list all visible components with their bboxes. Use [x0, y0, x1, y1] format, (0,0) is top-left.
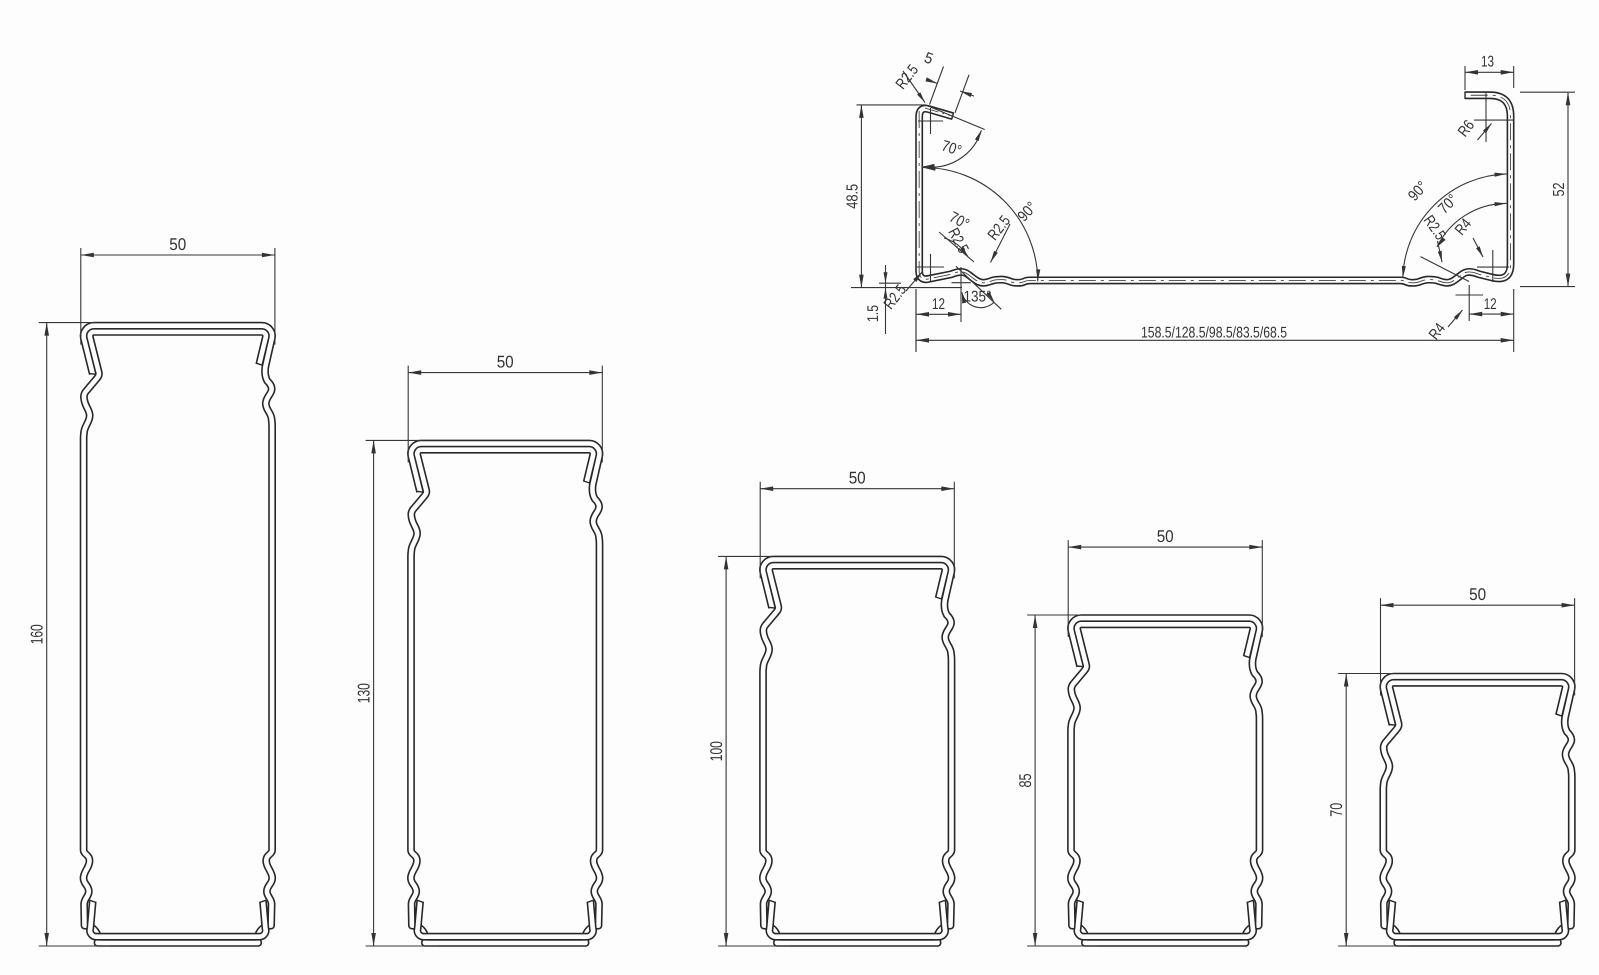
svg-text:48.5: 48.5 [845, 184, 862, 209]
svg-text:130: 130 [355, 683, 374, 703]
svg-text:85: 85 [1016, 774, 1035, 788]
svg-text:52: 52 [1551, 182, 1568, 196]
svg-text:50: 50 [169, 235, 186, 254]
svg-text:158.5/128.5/98.5/83.5/68.5: 158.5/128.5/98.5/83.5/68.5 [1141, 325, 1287, 342]
svg-text:50: 50 [1469, 585, 1486, 604]
svg-text:50: 50 [849, 469, 866, 488]
svg-text:70: 70 [1327, 803, 1346, 817]
svg-text:100: 100 [707, 741, 726, 761]
svg-text:13: 13 [1481, 54, 1494, 71]
svg-text:12: 12 [932, 296, 945, 313]
svg-text:50: 50 [497, 353, 514, 372]
svg-text:1.5: 1.5 [865, 305, 882, 322]
svg-text:12: 12 [1484, 296, 1497, 313]
svg-text:50: 50 [1157, 527, 1174, 546]
svg-text:160: 160 [28, 624, 47, 644]
